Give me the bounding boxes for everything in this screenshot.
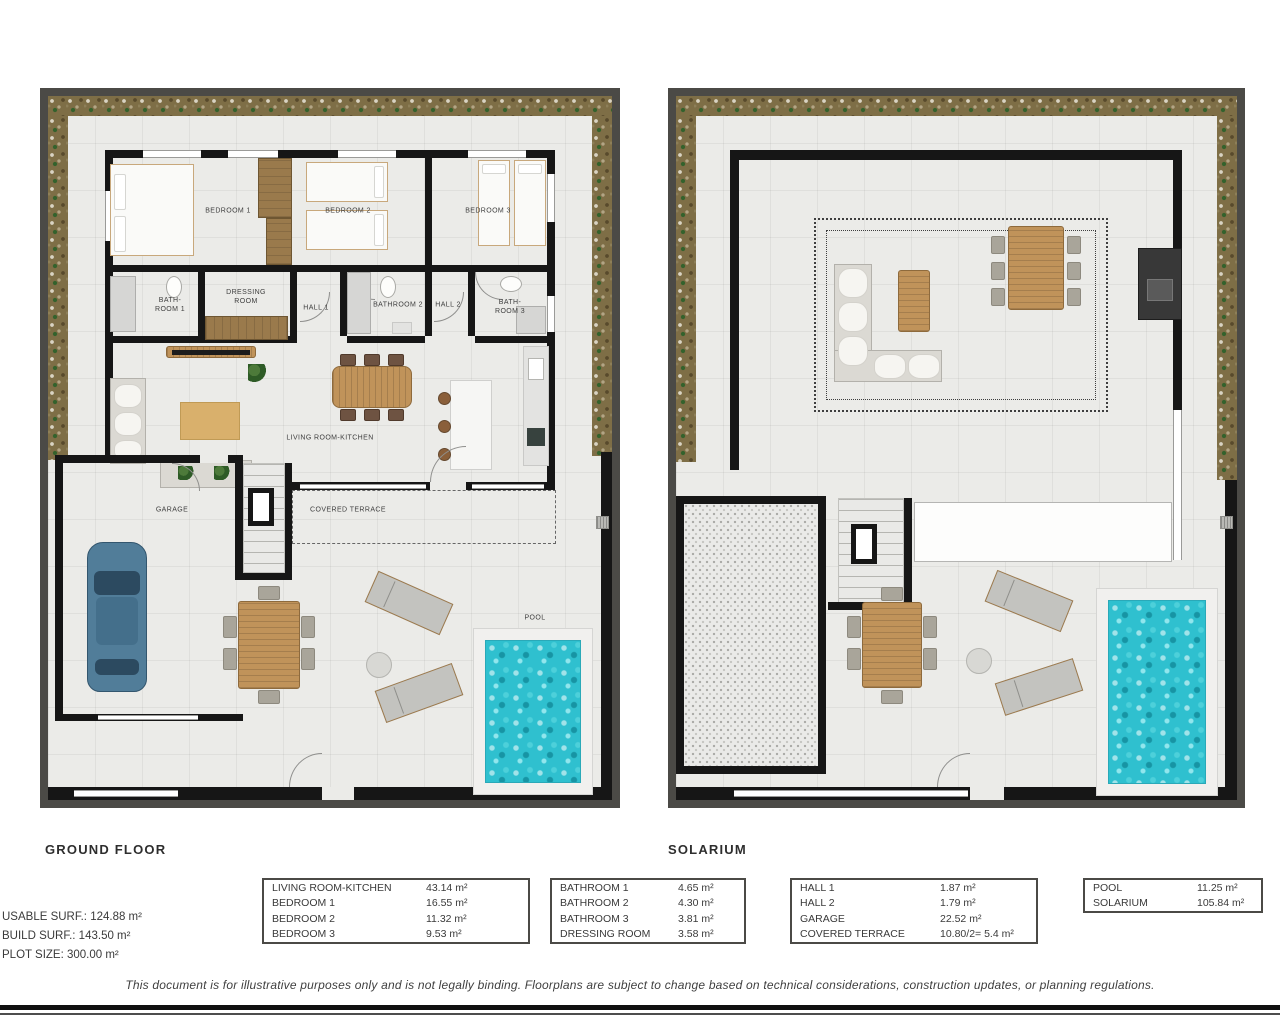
window [547, 296, 555, 332]
car [87, 542, 147, 692]
sun-lounger [365, 571, 454, 635]
roof-void-area [676, 496, 826, 774]
dining-chair [388, 409, 404, 421]
stair-void [851, 524, 877, 564]
surface-summary: USABLE SURF.: 124.88 m² BUILD SURF.: 143… [2, 908, 142, 965]
label-bathroom3: BATH- ROOM 3 [495, 298, 525, 316]
disclaimer-text: This document is for illustrative purpos… [0, 978, 1280, 992]
floorplan-sheet: BEDROOM 1 BEDROOM 2 BEDROOM 3 BATH- ROOM… [0, 0, 1280, 1024]
solarium-dining-table [1008, 226, 1064, 310]
toilet [380, 276, 396, 298]
tv [172, 350, 250, 355]
outdoor-kitchen-bbq [1138, 248, 1182, 320]
sun-lounger [995, 658, 1083, 716]
label-garage: GARAGE [156, 505, 188, 514]
vent-icon [596, 516, 609, 529]
row-label: HALL 2 [800, 897, 940, 909]
ground-floor-plan: BEDROOM 1 BEDROOM 2 BEDROOM 3 BATH- ROOM… [40, 88, 620, 808]
table-row: GARAGE22.52 m² [792, 911, 1036, 927]
window [338, 150, 396, 158]
dining-chair [364, 354, 380, 366]
outdoor-table [862, 602, 922, 688]
door-arc [475, 272, 503, 300]
cushion [114, 384, 142, 408]
solarium-plan [668, 88, 1245, 808]
outdoor-chair [847, 616, 861, 638]
window [228, 150, 278, 158]
dining-chair [991, 262, 1005, 280]
row-value: 4.65 m² [678, 882, 740, 894]
label-bedroom3: BEDROOM 3 [465, 206, 511, 215]
label-hall2: HALL 2 [435, 300, 461, 309]
closet-lower [266, 218, 292, 265]
table-row: BEDROOM 116.55 m² [264, 896, 528, 912]
cushion [838, 268, 868, 298]
pillow [374, 166, 384, 198]
row-label: SOLARIUM [1093, 897, 1197, 909]
pillow [374, 214, 384, 246]
solarium-wall-left [730, 150, 739, 470]
cushion [114, 412, 142, 436]
row-value: 1.79 m² [940, 897, 1032, 909]
stair-void [248, 488, 274, 526]
shower [110, 276, 136, 332]
label-bathroom2: BATHROOM 2 [373, 300, 423, 309]
row-label: DRESSING ROOM [560, 928, 678, 940]
label-hall1: HALL 1 [303, 303, 329, 312]
row-value: 3.81 m² [678, 913, 740, 925]
side-table [966, 648, 992, 674]
label-bedroom1: BEDROOM 1 [205, 206, 251, 215]
area-table-baths: BATHROOM 14.65 m² BATHROOM 24.30 m² BATH… [550, 878, 746, 944]
dining-chair [991, 288, 1005, 306]
garage-door [98, 715, 198, 720]
table-row: COVERED TERRACE10.80/2= 5.4 m² [792, 927, 1036, 943]
row-value: 4.30 m² [678, 897, 740, 909]
outdoor-chair [258, 586, 280, 600]
window [143, 150, 201, 158]
table-row: POOL11.25 m² [1085, 880, 1261, 896]
gravel-strip-right [592, 116, 612, 456]
dining-chair [364, 409, 380, 421]
car-roof [96, 597, 138, 645]
glass-balustrade [914, 502, 1172, 562]
wall-dressing-hall1 [290, 272, 297, 336]
wall-bath1-dressing [198, 272, 205, 336]
row-label: BEDROOM 2 [272, 913, 426, 925]
closet-upper [258, 158, 292, 218]
gravel-strip-right [1217, 116, 1237, 480]
outdoor-chair [301, 616, 315, 638]
area-table-pool-solarium: POOL11.25 m² SOLARIUM105.84 m² [1083, 878, 1263, 913]
area-table-halls-garage: HALL 11.87 m² HALL 21.79 m² GARAGE22.52 … [790, 878, 1038, 944]
toilet [500, 276, 522, 292]
lounger-headrest-line [383, 581, 395, 607]
wall-bedroom2-3 [425, 150, 432, 265]
outdoor-chair [258, 690, 280, 704]
area-table-main: LIVING ROOM-KITCHEN43.14 m² BEDROOM 116.… [262, 878, 530, 944]
row-value: 1.87 m² [940, 882, 1032, 894]
stool [438, 420, 451, 433]
sun-lounger [985, 570, 1074, 632]
table-row: BEDROOM 211.32 m² [264, 911, 528, 927]
window [472, 484, 544, 489]
wall-baths-living-2 [347, 336, 425, 343]
window [734, 790, 968, 797]
gravel-strip-left [48, 116, 68, 460]
table-row: BATHROOM 14.65 m² [552, 880, 744, 896]
dining-chair [991, 236, 1005, 254]
kitchen-sink [528, 358, 544, 380]
row-value: 105.84 m² [1197, 897, 1257, 909]
table-row: BATHROOM 24.30 m² [552, 896, 744, 912]
sink [392, 322, 412, 334]
window [468, 150, 526, 158]
stool [438, 392, 451, 405]
row-value: 43.14 m² [426, 882, 524, 894]
cushion [874, 354, 906, 379]
car-rear-window [95, 659, 139, 675]
footer-rule-thick [0, 1005, 1280, 1010]
solarium-title: SOLARIUM [668, 842, 747, 857]
sofa-plant-pillow [214, 466, 230, 480]
usable-surface: USABLE SURF.: 124.88 m² [2, 908, 142, 927]
pillow [114, 174, 126, 210]
rug [180, 402, 240, 440]
lounger-headrest-line [1013, 680, 1023, 707]
window [300, 484, 426, 489]
stairs-wall-right [904, 498, 912, 610]
lounger-headrest-line [393, 687, 404, 714]
window [547, 174, 555, 222]
perimeter-wall-right [601, 452, 612, 800]
table-row: BEDROOM 39.53 m² [264, 927, 528, 943]
dining-table [332, 366, 412, 408]
table-row: HALL 21.79 m² [792, 896, 1036, 912]
pool-water [1108, 600, 1206, 784]
outdoor-chair [223, 616, 237, 638]
outdoor-chair [223, 648, 237, 670]
table-row: SOLARIUM105.84 m² [1085, 896, 1261, 912]
solarium-wall-top [730, 150, 1182, 160]
stairs-wall-bottom [235, 573, 292, 580]
outdoor-chair [923, 648, 937, 670]
build-surface: BUILD SURF.: 143.50 m² [2, 927, 142, 946]
row-label: LIVING ROOM-KITCHEN [272, 882, 426, 894]
glass-panel [1173, 410, 1182, 560]
outdoor-table [238, 601, 300, 689]
dining-chair [1067, 288, 1081, 306]
row-label: HALL 1 [800, 882, 940, 894]
dining-chair [1067, 262, 1081, 280]
footer-rule-thin [0, 1013, 1280, 1015]
side-table [366, 652, 392, 678]
pillow [482, 164, 506, 174]
row-label: BATHROOM 3 [560, 913, 678, 925]
gravel-strip-left [676, 116, 696, 462]
row-value: 10.80/2= 5.4 m² [940, 928, 1032, 940]
toilet [166, 276, 182, 298]
table-row: HALL 11.87 m² [792, 880, 1036, 896]
row-label: GARAGE [800, 913, 940, 925]
plant [248, 364, 266, 382]
outdoor-chair [881, 587, 903, 601]
table-row: LIVING ROOM-KITCHEN43.14 m² [264, 880, 528, 896]
row-value: 16.55 m² [426, 897, 524, 909]
wall-bath2-hall2 [425, 272, 432, 336]
label-living-room: LIVING ROOM-KITCHEN [286, 433, 373, 442]
bbq-grill [1147, 279, 1173, 301]
ground-floor-title: GROUND FLOOR [45, 842, 166, 857]
wall-baths-living-3 [475, 336, 547, 343]
row-value: 9.53 m² [426, 928, 524, 940]
pillow [114, 216, 126, 252]
row-label: BATHROOM 1 [560, 882, 678, 894]
label-bedroom2: BEDROOM 2 [325, 206, 371, 215]
outdoor-chair [881, 690, 903, 704]
door-arc [289, 753, 322, 787]
vent-icon [1220, 516, 1233, 529]
table-row: DRESSING ROOM3.58 m² [552, 927, 744, 943]
door-arc [937, 753, 970, 787]
gravel-strip-top [676, 96, 1237, 116]
row-label: BEDROOM 1 [272, 897, 426, 909]
row-value: 22.52 m² [940, 913, 1032, 925]
outdoor-chair [923, 616, 937, 638]
dining-chair [1067, 236, 1081, 254]
row-label: POOL [1093, 882, 1197, 894]
dining-chair [388, 354, 404, 366]
door-arc [430, 446, 466, 482]
row-label: BATHROOM 2 [560, 897, 678, 909]
cooktop [527, 428, 545, 446]
row-label: BEDROOM 3 [272, 928, 426, 940]
window [74, 790, 178, 797]
outdoor-chair [847, 648, 861, 670]
stairs-wall-right [285, 463, 292, 580]
gravel-strip-top [48, 96, 612, 116]
covered-terrace-outline [292, 490, 556, 544]
car-windshield [94, 571, 140, 595]
label-covered-terrace: COVERED TERRACE [310, 505, 386, 514]
cushion [908, 354, 940, 379]
garage-wall-right [235, 455, 243, 580]
lounger-headrest-line [1003, 580, 1014, 606]
row-value: 11.25 m² [1197, 882, 1257, 894]
label-pool: POOL [524, 613, 545, 622]
label-bathroom1: BATH- ROOM 1 [155, 296, 185, 314]
door-opening [970, 787, 1004, 800]
dining-chair [340, 409, 356, 421]
shower [347, 272, 371, 334]
row-value: 11.32 m² [426, 913, 524, 925]
pillow [518, 164, 542, 174]
door-opening [200, 455, 228, 463]
dining-chair [340, 354, 356, 366]
door-opening [322, 787, 354, 800]
wall-bedrooms-baths [105, 265, 555, 272]
cushion [838, 302, 868, 332]
dressing-wardrobe [205, 316, 288, 340]
coffee-table [898, 270, 930, 332]
garage-wall-left [55, 455, 63, 721]
row-value: 3.58 m² [678, 928, 740, 940]
outdoor-chair [301, 648, 315, 670]
wall-hall2-bath3 [468, 272, 475, 336]
pool-water [485, 640, 581, 783]
cushion [838, 336, 868, 366]
wall-hall1-bath2 [340, 272, 347, 336]
row-label: COVERED TERRACE [800, 928, 940, 940]
label-dressing-room: DRESSING ROOM [226, 288, 266, 306]
door-opening [430, 482, 466, 490]
table-row: BATHROOM 33.81 m² [552, 911, 744, 927]
plot-size: PLOT SIZE: 300.00 m² [2, 946, 142, 965]
